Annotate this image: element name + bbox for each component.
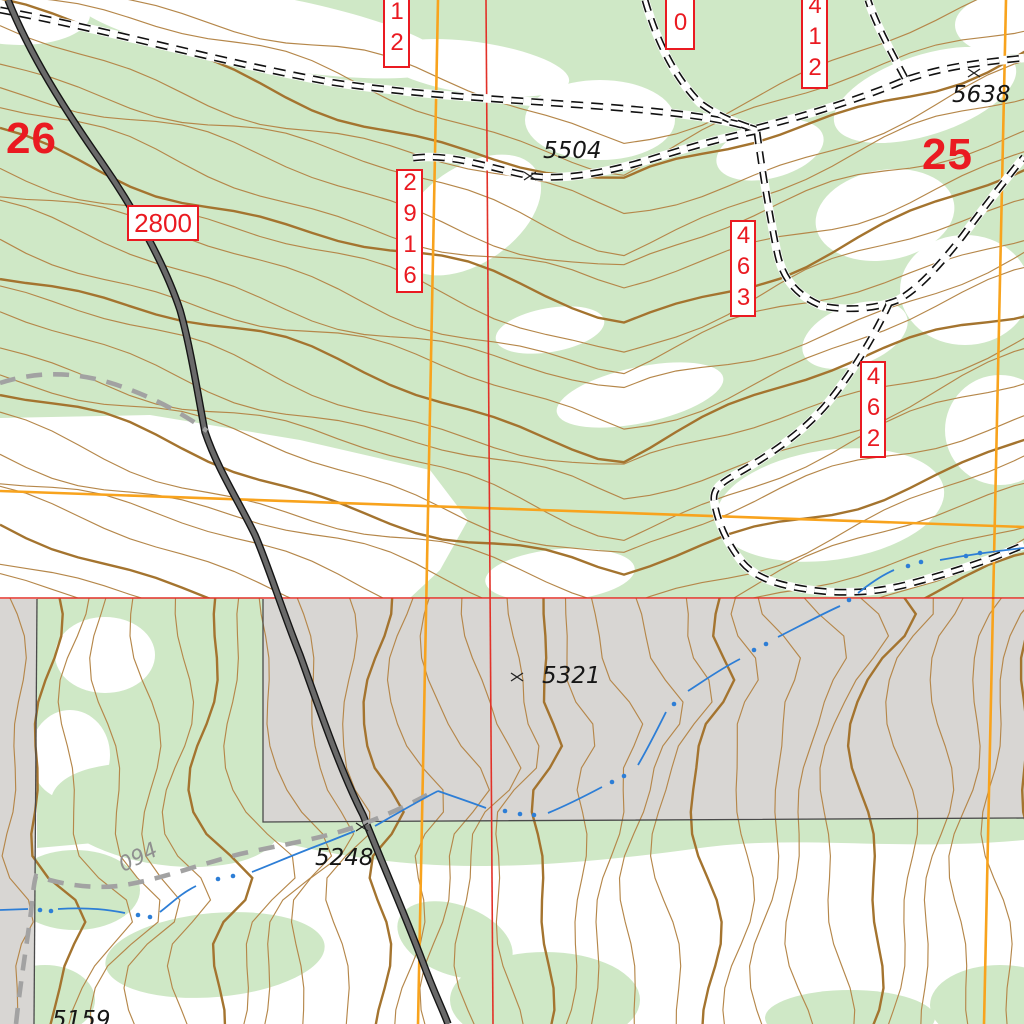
road-label-412: 412 [801, 0, 828, 89]
section-number-25: 25 [922, 130, 973, 180]
road-label-top-left-partial: 12 [383, 0, 410, 68]
spot-elevation-5159: 5159 [52, 1007, 111, 1024]
topo-map: 26 25 2800 2916 12 00 412 463 462 5504 5… [0, 0, 1024, 1024]
road-label-463: 463 [730, 220, 756, 317]
road-label-462: 462 [860, 361, 886, 458]
road-label-top-center-partial: 00 [665, 0, 695, 50]
spot-elevation-5321: 5321 [542, 663, 601, 689]
spot-elevation-5504: 5504 [543, 138, 602, 164]
map-base-svg [0, 0, 1024, 1024]
spot-elevation-5638: 5638 [952, 82, 1011, 108]
spot-elevation-5248: 5248 [315, 845, 374, 871]
section-number-26: 26 [6, 114, 57, 164]
road-label-2800: 2800 [127, 205, 199, 241]
road-label-2916: 2916 [396, 169, 423, 293]
